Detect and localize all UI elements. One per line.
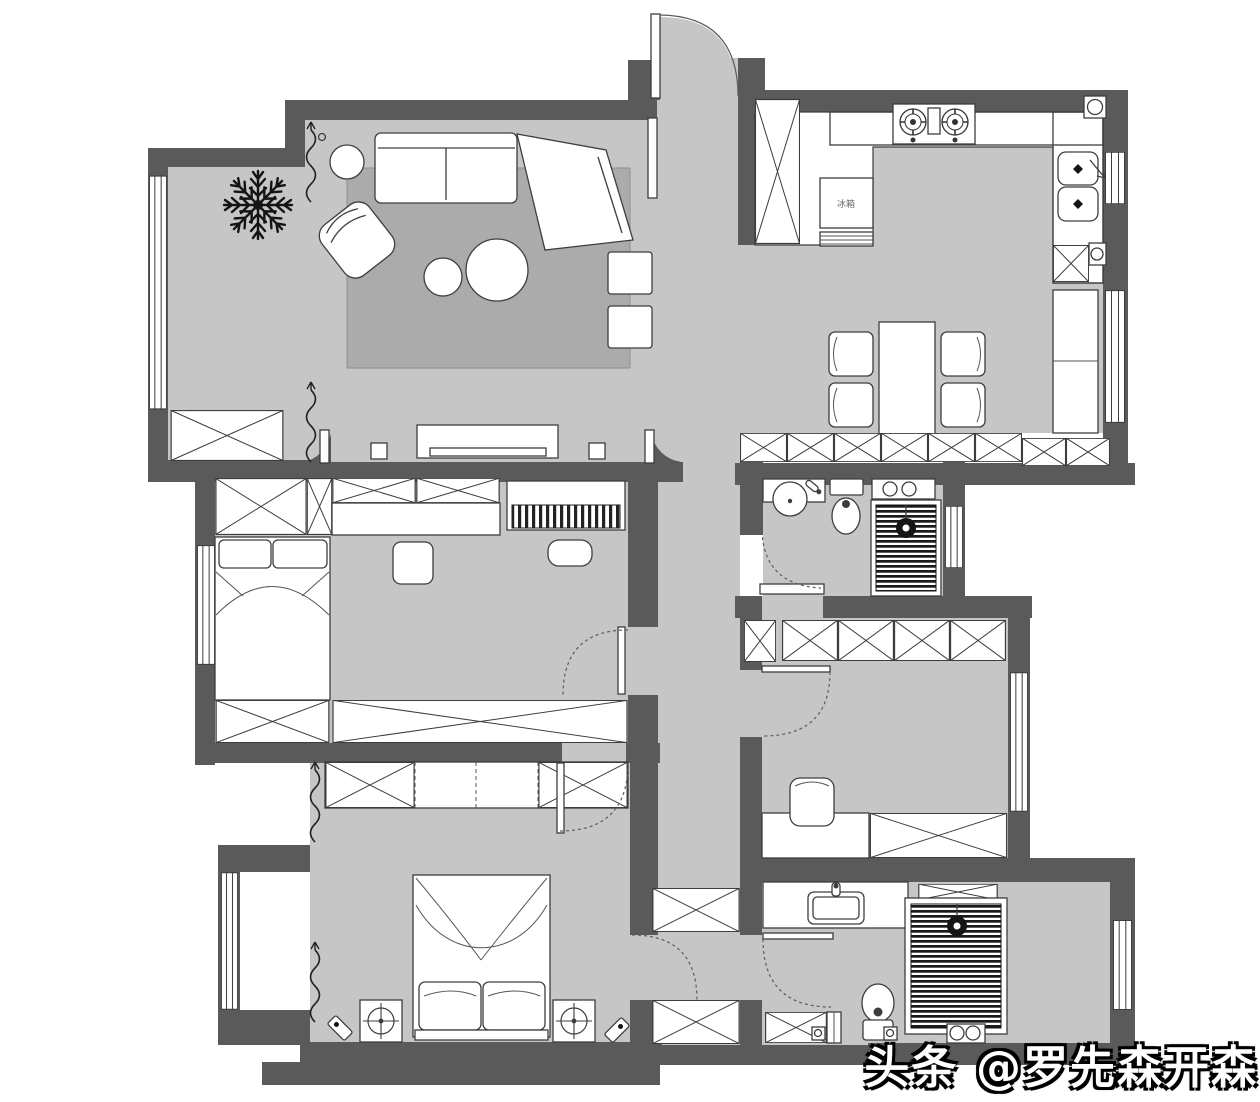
balcony-window-icon <box>149 175 166 410</box>
midbath-door-opening <box>762 596 823 618</box>
desk-cabinet-x-icon <box>870 813 1006 857</box>
study-window-icon <box>1010 672 1027 812</box>
double-bed-icon <box>413 875 550 1040</box>
door-post <box>645 430 654 463</box>
shower-head-icon <box>947 916 967 936</box>
corridor-cabinet-x-icon <box>653 888 739 931</box>
pillow-icon <box>483 982 545 1030</box>
toilet-icon <box>830 479 863 534</box>
door-post <box>320 430 329 463</box>
plant-icon <box>224 171 292 239</box>
nightstand-icon <box>393 542 433 584</box>
faucet-icon <box>832 883 840 896</box>
master-wardrobe-row <box>325 762 628 808</box>
speaker-icon <box>371 443 387 459</box>
coffee-table-icon <box>466 239 528 301</box>
door-leaf <box>557 763 564 833</box>
wardrobe-x-icon <box>216 479 306 535</box>
under-counter-cabinet-x-icon <box>1053 245 1088 281</box>
sideboard <box>332 503 500 535</box>
sideboard-cabinet-row <box>740 433 1109 465</box>
washer-counter-icon <box>872 479 935 499</box>
corridor-cabinet-x-icon <box>653 1000 739 1043</box>
tv-icon <box>430 448 546 456</box>
bed-footboard <box>415 1030 548 1040</box>
master-door-opening <box>562 743 628 763</box>
piano-icon <box>507 481 625 530</box>
dining-table-icon <box>879 322 935 434</box>
bedroom2-window-icon <box>197 545 214 665</box>
pillow-icon <box>219 540 271 568</box>
kitchen-window-icon <box>1106 152 1125 204</box>
stool-icon <box>608 252 652 294</box>
entry-door-swing-floor <box>660 17 737 97</box>
bay-niche-floor <box>238 872 310 1010</box>
shower-head-icon <box>896 518 916 538</box>
hall-dining-opening <box>738 245 765 435</box>
master-bay-window-icon <box>221 872 237 1010</box>
watermark-text: 头条 @罗先森开森 <box>864 1041 1258 1094</box>
round-side-table-icon <box>330 145 364 179</box>
pillow-icon <box>273 540 327 568</box>
balcony-cabinet-x-icon <box>171 411 283 461</box>
bath-door-opening <box>740 935 762 1000</box>
door-threshold <box>760 584 824 594</box>
floor-plan-svg: 冰箱 <box>0 0 1260 1102</box>
speaker-icon <box>589 443 605 459</box>
bedroom2-door-opening <box>628 627 658 695</box>
overhead-cabinet-x-icon <box>417 478 499 503</box>
bottom-wardrobe-row <box>216 700 627 742</box>
study-wardrobe-row <box>783 620 1006 660</box>
tall-cabinet-x-icon <box>755 99 799 243</box>
overhead-cabinet-x-icon <box>333 478 415 503</box>
wardrobe-x-icon <box>307 479 332 535</box>
piano-stool-icon <box>548 540 592 566</box>
master-bath-window-icon <box>1113 920 1131 1010</box>
study-door-opening <box>740 670 762 737</box>
coffee-table-small-icon <box>424 258 462 296</box>
dining-window-icon <box>1106 290 1125 423</box>
glass-post <box>648 118 657 198</box>
entry-door-leaf <box>651 14 660 98</box>
corridor-door-opening <box>630 935 658 1000</box>
midbath-window-icon <box>945 506 962 568</box>
pillow-icon <box>419 982 481 1030</box>
door-leaf <box>763 933 833 939</box>
door-leaf <box>762 666 830 672</box>
stool-icon <box>608 306 652 348</box>
watermark: 头条 @罗先森开森 <box>864 1031 1258 1096</box>
fridge-label: 冰箱 <box>837 198 855 209</box>
double-bed-icon <box>215 537 330 700</box>
small-cabinet-x-icon <box>744 620 775 661</box>
door-leaf <box>618 627 625 694</box>
floor-plan-image: 冰箱 <box>0 0 1260 1102</box>
